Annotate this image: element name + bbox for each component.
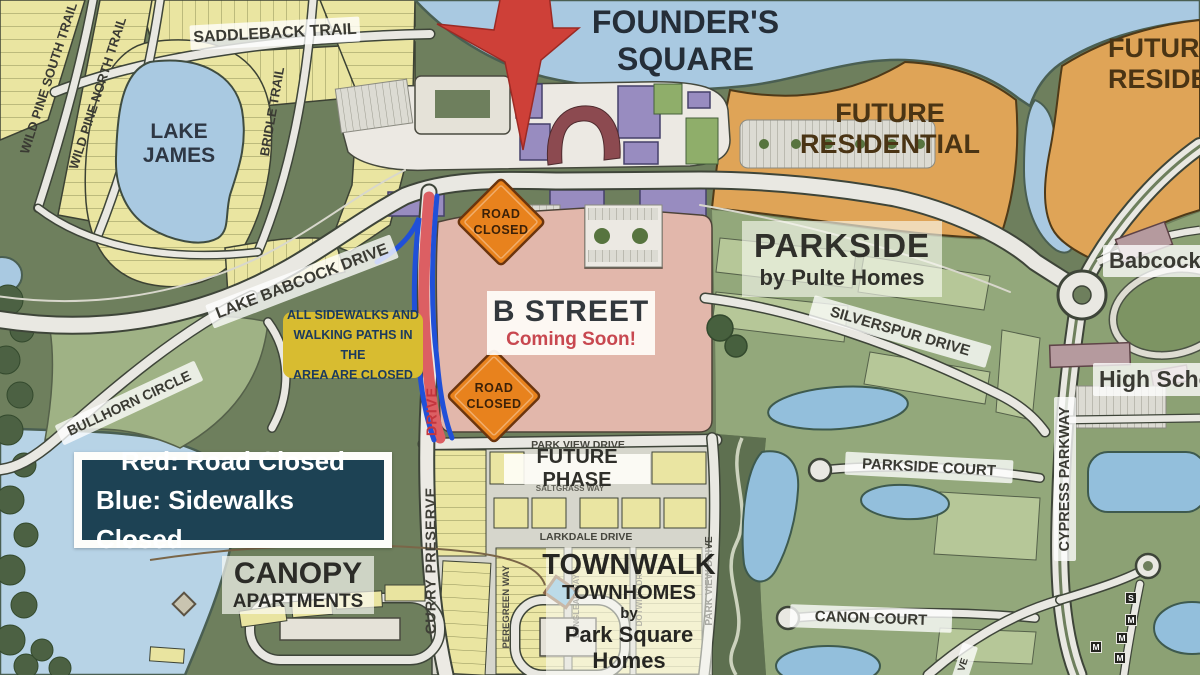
parking-row xyxy=(588,208,658,220)
lot-marker-m: M xyxy=(1125,614,1137,626)
future-residential-line2: RESIDENTIAL xyxy=(1108,64,1200,95)
babcock-label: Babcock xyxy=(1103,245,1200,277)
future-residential-line1: FUTURE xyxy=(1108,33,1200,64)
founders-square-line2: SQUARE xyxy=(617,41,754,78)
parking-row xyxy=(588,250,658,262)
future-phase-panel: FUTURE PHASE xyxy=(504,454,650,484)
curry-drive-label: DRIVE xyxy=(425,377,442,447)
townwalk-panel: TOWNWALK TOWNHOMES by Park Square Homes xyxy=(546,548,712,675)
sign-line1: ROAD xyxy=(475,380,514,396)
high-school-label: High School xyxy=(1093,363,1200,396)
lake-james-line2: JAMES xyxy=(143,144,215,168)
founders-square-line1: FOUNDER'S xyxy=(592,4,779,41)
note-line1: ALL SIDEWALKS AND xyxy=(287,305,419,325)
note-line2: WALKING PATHS IN THE xyxy=(283,325,423,365)
future-residential-line2: RESIDENTIAL xyxy=(800,129,980,160)
lot-marker-m: M xyxy=(1114,652,1126,664)
note-line3: AREA ARE CLOSED xyxy=(293,365,413,385)
parkside-subtitle: by Pulte Homes xyxy=(759,265,924,291)
b-street-title: B STREET xyxy=(493,295,649,329)
roundabout xyxy=(1058,271,1106,319)
canopy-line1: CANOPY xyxy=(234,557,362,591)
legend-box: Red: Road Closed Blue: Sidewalks Closed xyxy=(74,452,392,548)
founders-square-label: FOUNDER'S SQUARE xyxy=(598,4,773,78)
site-map: FOUNDER'S SQUARE FUTURE RESIDENTIAL FUTU… xyxy=(0,0,1200,675)
curry-preserve-label: CURRY PRESERVE xyxy=(424,461,441,661)
parkside-title: PARKSIDE xyxy=(754,227,930,265)
canopy-panel: CANOPY APARTMENTS xyxy=(222,556,374,614)
legend-blue-line: Blue: Sidewalks Closed xyxy=(96,481,370,559)
sign-line1: ROAD xyxy=(482,206,521,222)
lake-james-label: LAKE JAMES xyxy=(133,120,225,168)
lot-marker-m: M xyxy=(1090,641,1102,653)
b-street-panel: B STREET Coming Soon! xyxy=(487,291,655,355)
lake-james-line1: LAKE xyxy=(150,120,207,144)
future-phase-label: FUTURE PHASE xyxy=(504,446,650,492)
townwalk-line2: TOWNHOMES xyxy=(562,582,696,605)
road-closed-sign-north-text: ROAD CLOSED xyxy=(466,200,536,244)
road-closed-sign-south-text: ROAD CLOSED xyxy=(459,374,529,418)
lot-marker-m: M xyxy=(1116,632,1128,644)
future-residential-west-label: FUTURE RESIDENTIAL xyxy=(795,98,985,160)
townwalk-line3: by xyxy=(620,605,638,622)
b-street-subtitle: Coming Soon! xyxy=(506,329,636,351)
lot-marker-s: S xyxy=(1125,592,1137,604)
sign-line2: CLOSED xyxy=(473,222,528,238)
sign-line2: CLOSED xyxy=(466,396,521,412)
townwalk-line5: Homes xyxy=(592,648,665,674)
townwalk-line4: Park Square xyxy=(565,622,693,648)
future-residential-east-label: FUTURE RESIDENTIAL xyxy=(1108,33,1200,95)
tree-icon xyxy=(632,228,648,244)
peregreen-way-label: PEREGREEN WAY xyxy=(501,551,513,663)
sidewalks-closed-note: ALL SIDEWALKS AND WALKING PATHS IN THE A… xyxy=(283,312,423,378)
townwalk-line1: TOWNWALK xyxy=(542,549,715,582)
future-residential-line1: FUTURE xyxy=(835,98,945,129)
legend-inner: Red: Road Closed Blue: Sidewalks Closed xyxy=(82,460,384,540)
larkdale-drive-label: LARKDALE DRIVE xyxy=(530,530,642,544)
legend-red-line: Red: Road Closed xyxy=(121,442,345,481)
tree-icon xyxy=(594,228,610,244)
cypress-parkway-label: CYPRESS PARKWAY xyxy=(1054,397,1076,561)
canopy-line2: APARTMENTS xyxy=(233,591,364,613)
parkside-panel: PARKSIDE by Pulte Homes xyxy=(742,221,942,297)
